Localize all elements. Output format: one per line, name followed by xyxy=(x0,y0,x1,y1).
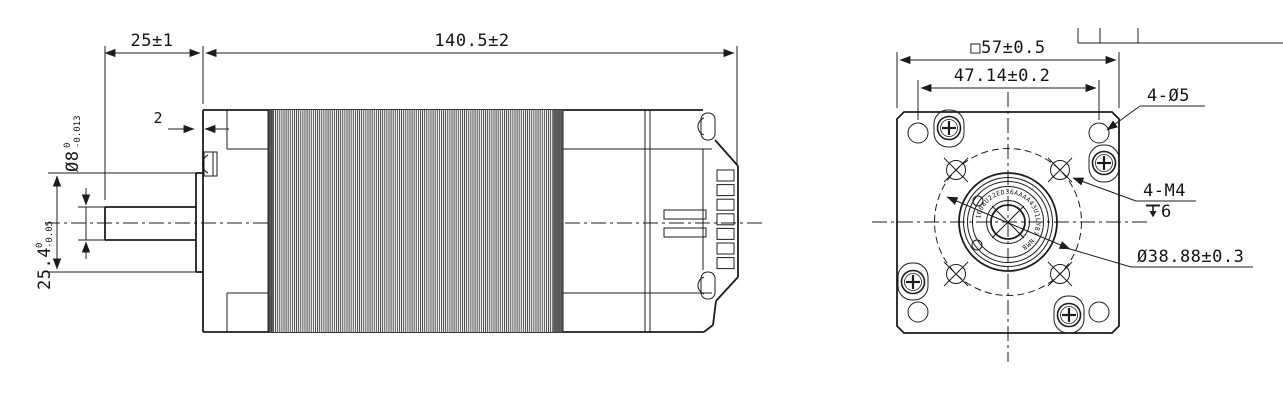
bolt-circle-label: Ø38.88±0.3 xyxy=(1137,247,1244,267)
engineering-drawing-page: 25±1 140.5±2 2 Ø8 0 -0.013 xyxy=(0,0,1283,410)
screw-top-left xyxy=(934,110,964,147)
frame-size-label: □57±0.5 xyxy=(970,38,1045,58)
shaft-dia-tol-lower: -0.013 xyxy=(73,115,83,148)
dim-boss-thickness: 2 xyxy=(153,109,229,140)
engineering-drawing-canvas: 25±1 140.5±2 2 Ø8 0 -0.013 xyxy=(0,0,1283,410)
hole-spacing-label: 47.14±0.2 xyxy=(954,66,1051,86)
dim-body-length-label: 140.5±2 xyxy=(434,31,509,51)
screw-right xyxy=(1089,145,1119,182)
dim-shaft-length-label: 25±1 xyxy=(131,31,174,51)
rear-screw-top xyxy=(698,113,715,140)
stator-stack xyxy=(268,110,563,332)
thread-callout-label: 4-M4 xyxy=(1143,181,1186,201)
dim-pilot-diameter: 25.4 0 -0.05 xyxy=(35,173,203,290)
corner-hole-callout-label: 4-Ø5 xyxy=(1147,86,1190,106)
screw-left xyxy=(898,263,928,300)
shaft-dia-label: Ø8 xyxy=(63,151,83,172)
screw-bottom-right xyxy=(1054,296,1084,333)
vent-slots xyxy=(717,170,734,269)
pilot-dia-tol-lower: -0.05 xyxy=(45,221,55,248)
side-view: 25±1 140.5±2 2 Ø8 0 -0.013 xyxy=(35,31,765,332)
dim-shaft-diameter: Ø8 0 -0.013 xyxy=(63,115,105,259)
shaft-dia-tol-upper: 0 xyxy=(63,143,73,148)
callout-corner-holes: 4-Ø5 xyxy=(1107,86,1205,130)
rear-screw-bottom xyxy=(698,272,715,299)
front-view: 1608U22ED36AAAA43U1LYB7 NMB □57±0.5 47.1… xyxy=(872,38,1253,362)
title-block-fragment xyxy=(1078,28,1283,43)
depth-symbol-icon xyxy=(1146,206,1160,218)
dim-boss-label: 2 xyxy=(153,109,162,127)
pilot-dia-label: 25.4 xyxy=(35,247,55,290)
key-tab xyxy=(202,152,217,176)
callout-mounting-thread: 4-M4 6 xyxy=(1073,178,1196,222)
thread-depth-value: 6 xyxy=(1161,202,1172,222)
pilot-dia-tol-upper: 0 xyxy=(35,243,45,248)
